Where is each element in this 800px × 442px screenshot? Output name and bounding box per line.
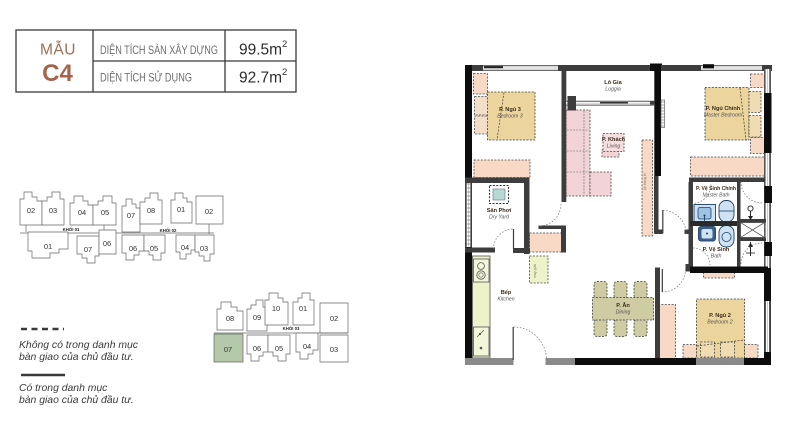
svg-text:92.7m: 92.7m bbox=[239, 70, 282, 87]
svg-text:KHỐI 01: KHỐI 01 bbox=[63, 227, 80, 232]
svg-text:05: 05 bbox=[275, 344, 283, 353]
svg-text:P. Ngủ 2: P. Ngủ 2 bbox=[709, 313, 731, 319]
svg-text:DIỆN TÍCH SỬ DỤNG: DIỆN TÍCH SỬ DỤNG bbox=[100, 70, 192, 85]
svg-text:07: 07 bbox=[84, 245, 92, 254]
svg-text:2: 2 bbox=[282, 39, 287, 50]
svg-text:máy giặt: máy giặt bbox=[533, 264, 537, 278]
svg-text:Dining: Dining bbox=[616, 310, 631, 316]
svg-text:Bedroom 2: Bedroom 2 bbox=[707, 320, 732, 326]
svg-text:Bếp: Bếp bbox=[501, 289, 512, 296]
svg-text:MẪU: MẪU bbox=[40, 42, 76, 59]
svg-text:Master Bedroom: Master Bedroom bbox=[704, 113, 743, 119]
svg-text:07: 07 bbox=[224, 345, 232, 354]
svg-text:01: 01 bbox=[177, 205, 185, 214]
svg-text:Bath: Bath bbox=[711, 254, 722, 260]
svg-text:04: 04 bbox=[181, 243, 189, 252]
svg-text:P. Vệ Sinh Chính: P. Vệ Sinh Chính bbox=[696, 186, 736, 192]
svg-text:06: 06 bbox=[253, 344, 261, 353]
svg-text:06: 06 bbox=[129, 244, 137, 253]
svg-text:05: 05 bbox=[150, 244, 158, 253]
svg-text:Dry Yard: Dry Yard bbox=[489, 215, 510, 221]
svg-text:08: 08 bbox=[226, 314, 234, 323]
svg-text:99.5m: 99.5m bbox=[239, 42, 282, 59]
svg-text:01: 01 bbox=[299, 304, 307, 313]
svg-text:10: 10 bbox=[272, 304, 280, 313]
svg-text:Living: Living bbox=[607, 144, 621, 150]
svg-text:02: 02 bbox=[27, 206, 35, 215]
svg-text:kệ trang trí: kệ trang trí bbox=[643, 173, 647, 190]
svg-text:Sân Phơi: Sân Phơi bbox=[487, 208, 512, 214]
svg-text:bàn giao của chủ đầu tư.: bàn giao của chủ đầu tư. bbox=[19, 351, 134, 363]
svg-text:03: 03 bbox=[49, 206, 57, 215]
svg-text:KHỐI 03: KHỐI 03 bbox=[283, 326, 300, 331]
svg-text:KHỐI 02: KHỐI 02 bbox=[160, 228, 177, 233]
svg-text:bàn giao của chủ đầu tư.: bàn giao của chủ đầu tư. bbox=[19, 394, 134, 406]
svg-text:Master Bath: Master Bath bbox=[703, 193, 730, 199]
svg-text:C4: C4 bbox=[42, 60, 73, 87]
svg-text:03: 03 bbox=[200, 244, 208, 253]
svg-text:02: 02 bbox=[205, 207, 213, 216]
svg-text:06: 06 bbox=[103, 239, 111, 248]
svg-text:01: 01 bbox=[44, 242, 52, 251]
svg-text:Không có trong danh mục: Không có trong danh mục bbox=[19, 340, 139, 351]
svg-text:P. Vệ Sinh: P. Vệ Sinh bbox=[703, 247, 730, 253]
svg-text:09: 09 bbox=[253, 313, 261, 322]
svg-text:03: 03 bbox=[330, 345, 338, 354]
svg-text:DIỆN TÍCH SÀN XÂY DỰNG: DIỆN TÍCH SÀN XÂY DỰNG bbox=[100, 42, 218, 57]
svg-text:02: 02 bbox=[330, 314, 338, 323]
svg-text:P. Khách: P. Khách bbox=[602, 137, 626, 143]
svg-text:08: 08 bbox=[147, 206, 155, 215]
svg-text:2: 2 bbox=[282, 67, 287, 78]
svg-text:07: 07 bbox=[127, 211, 135, 220]
svg-text:05: 05 bbox=[101, 208, 109, 217]
svg-text:Bedroom 3: Bedroom 3 bbox=[497, 114, 522, 120]
svg-text:P. Ngủ Chính: P. Ngủ Chính bbox=[706, 106, 741, 112]
svg-text:Có trong danh mục: Có trong danh mục bbox=[19, 383, 108, 394]
svg-text:Loggia: Loggia bbox=[605, 87, 621, 93]
svg-text:Kitchen: Kitchen bbox=[497, 297, 514, 303]
svg-text:04: 04 bbox=[78, 208, 86, 217]
svg-text:P. Ngủ 3: P. Ngủ 3 bbox=[499, 107, 521, 113]
svg-text:04: 04 bbox=[303, 342, 311, 351]
svg-text:P. Ăn: P. Ăn bbox=[616, 302, 630, 309]
svg-text:Lô Gia: Lô Gia bbox=[604, 80, 622, 86]
